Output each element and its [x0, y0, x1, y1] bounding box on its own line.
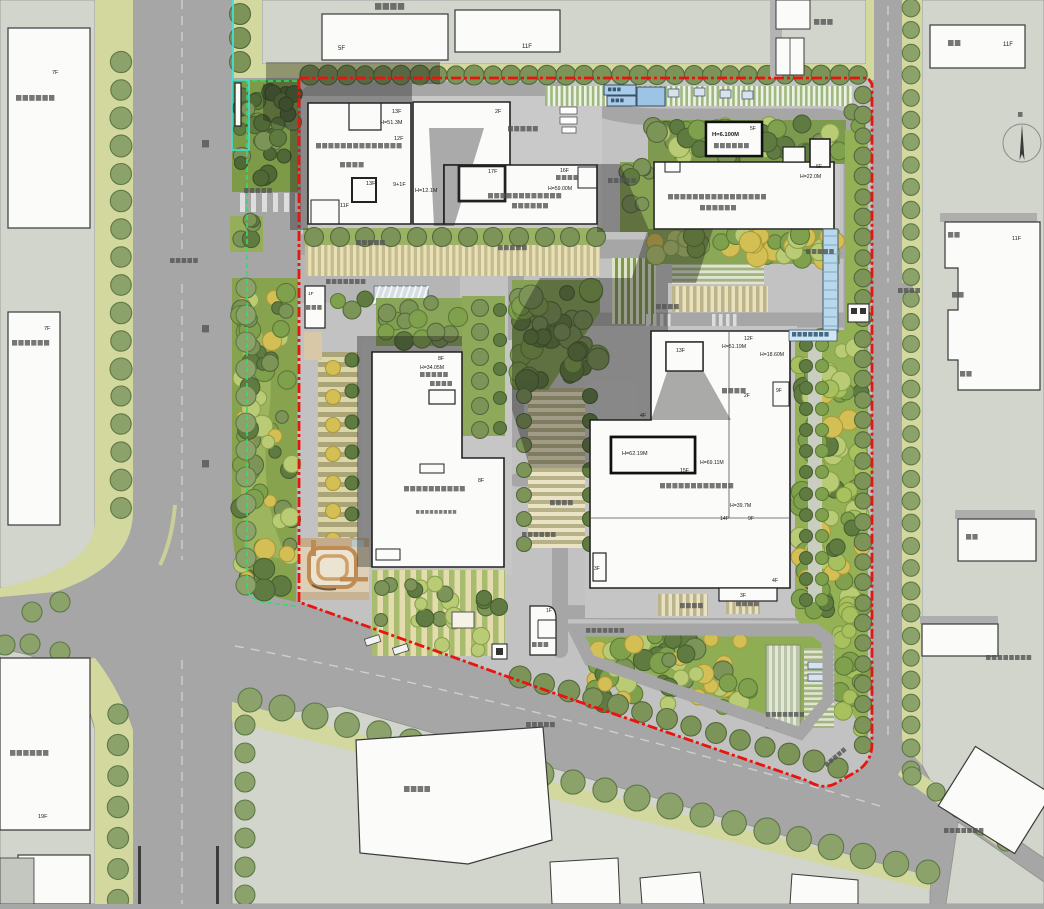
svg-text:19F: 19F: [38, 814, 48, 820]
svg-text:5F: 5F: [338, 46, 345, 52]
svg-text:H=51.3M: H=51.3M: [380, 120, 403, 126]
svg-text:8F: 8F: [478, 478, 484, 484]
svg-text:H=12.1M: H=12.1M: [415, 188, 438, 194]
svg-text:12F: 12F: [744, 336, 753, 342]
svg-text:7F: 7F: [52, 70, 59, 76]
svg-text:15F: 15F: [680, 468, 689, 474]
svg-text:1F: 1F: [546, 608, 552, 614]
svg-text:H=34.05M: H=34.05M: [420, 365, 444, 371]
svg-text:11F: 11F: [1003, 42, 1013, 48]
svg-text:H=69.11M: H=69.11M: [700, 460, 724, 466]
svg-text:9+1F: 9+1F: [393, 182, 406, 188]
svg-text:17F: 17F: [488, 169, 498, 175]
svg-text:H=51.19M: H=51.19M: [722, 344, 746, 350]
svg-text:13F: 13F: [392, 109, 402, 115]
svg-text:13F: 13F: [366, 181, 376, 187]
svg-text:5F: 5F: [750, 126, 756, 132]
svg-text:3F: 3F: [594, 566, 600, 572]
svg-text:H=22.0M: H=22.0M: [800, 174, 821, 180]
svg-text:7F: 7F: [44, 326, 51, 332]
svg-text:11F: 11F: [522, 44, 532, 50]
svg-text:H=39.7M: H=39.7M: [730, 503, 751, 509]
svg-text:H=18.60M: H=18.60M: [760, 352, 784, 358]
svg-text:2F: 2F: [744, 393, 750, 399]
svg-text:11F: 11F: [340, 203, 350, 209]
svg-text:3F: 3F: [740, 593, 746, 599]
svg-text:H=6.100M: H=6.100M: [712, 132, 739, 138]
svg-text:14F: 14F: [720, 516, 729, 522]
svg-text:6F: 6F: [816, 164, 822, 170]
svg-text:9F: 9F: [748, 516, 754, 522]
svg-text:4F: 4F: [772, 578, 778, 584]
svg-text:H=62.19M: H=62.19M: [622, 451, 648, 457]
svg-text:H=59.00M: H=59.00M: [548, 186, 572, 192]
svg-text:8F: 8F: [438, 356, 444, 362]
svg-text:13F: 13F: [676, 348, 685, 354]
svg-text:16F: 16F: [560, 168, 569, 174]
svg-text:9F: 9F: [776, 388, 782, 394]
svg-text:4F: 4F: [640, 413, 646, 419]
svg-text:12F: 12F: [394, 136, 404, 142]
svg-text:11F: 11F: [1012, 236, 1022, 242]
svg-text:1F: 1F: [308, 291, 314, 297]
svg-text:2F: 2F: [495, 109, 502, 115]
